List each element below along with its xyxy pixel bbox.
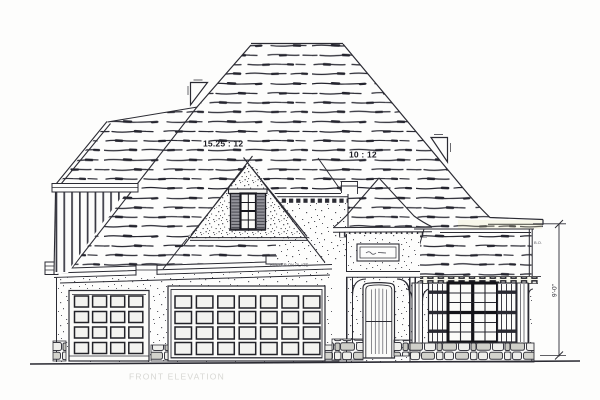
svg-text:FRONT ELEVATION: FRONT ELEVATION: [129, 372, 225, 382]
svg-text:9'-0": 9'-0": [552, 283, 559, 297]
svg-text:10 : 12: 10 : 12: [349, 150, 377, 160]
svg-text:15.25 : 12: 15.25 : 12: [203, 139, 243, 149]
svg-text:RAFTER ON PLATE: RAFTER ON PLATE: [270, 263, 309, 268]
svg-text:B.O.: B.O.: [534, 240, 542, 245]
